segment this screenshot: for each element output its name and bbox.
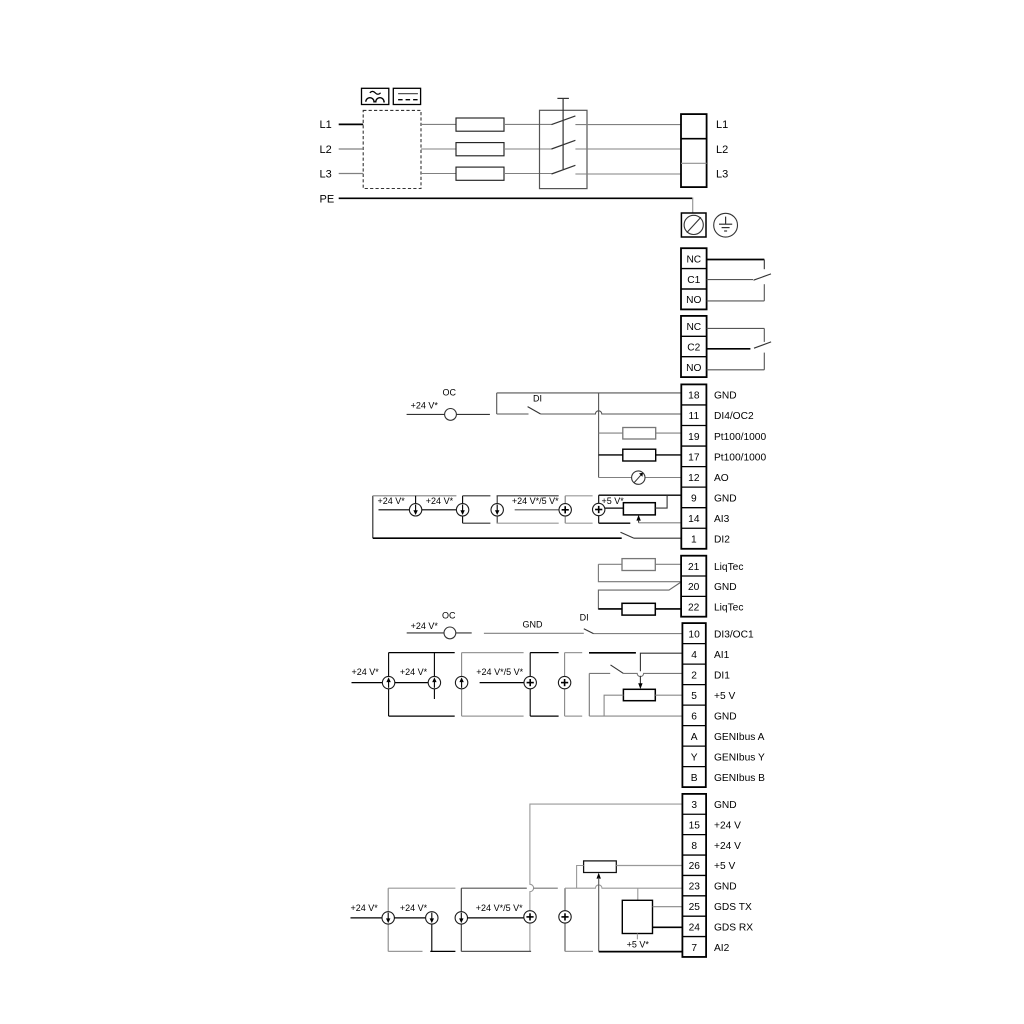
svg-text:DI: DI — [580, 612, 589, 622]
svg-text:6: 6 — [691, 711, 697, 722]
svg-text:GND: GND — [714, 391, 737, 402]
svg-text:26: 26 — [689, 861, 701, 872]
svg-text:17: 17 — [688, 452, 700, 463]
svg-text:+24 V*/5 V*: +24 V*/5 V* — [476, 903, 523, 913]
svg-text:NO: NO — [686, 363, 701, 374]
svg-text:Pt100/1000: Pt100/1000 — [714, 452, 766, 463]
svg-text:OC: OC — [443, 388, 457, 398]
svg-text:24: 24 — [689, 922, 701, 933]
svg-text:9: 9 — [691, 493, 697, 504]
svg-text:23: 23 — [689, 882, 701, 893]
svg-text:1: 1 — [691, 535, 697, 546]
svg-text:8: 8 — [691, 841, 697, 852]
svg-text:L1: L1 — [716, 119, 728, 131]
svg-text:7: 7 — [691, 943, 697, 954]
svg-text:Y: Y — [691, 752, 698, 763]
svg-text:GND: GND — [523, 619, 544, 629]
svg-text:DI: DI — [533, 393, 542, 403]
svg-text:10: 10 — [688, 629, 700, 640]
svg-text:20: 20 — [688, 582, 700, 593]
svg-text:L3: L3 — [320, 168, 332, 180]
svg-text:2: 2 — [691, 670, 697, 681]
svg-text:LiqTec: LiqTec — [714, 562, 743, 573]
svg-text:14: 14 — [688, 514, 700, 525]
svg-text:GENIbus B: GENIbus B — [714, 773, 765, 784]
svg-text:GND: GND — [714, 711, 737, 722]
svg-text:GDS TX: GDS TX — [714, 902, 752, 913]
svg-text:+24 V*/5 V*: +24 V*/5 V* — [512, 496, 559, 506]
svg-text:GND: GND — [714, 800, 737, 811]
svg-text:+5 V: +5 V — [714, 691, 735, 702]
svg-text:A: A — [691, 732, 698, 743]
svg-text:5: 5 — [691, 691, 697, 702]
svg-text:GENIbus Y: GENIbus Y — [714, 752, 765, 763]
svg-text:+5 V*: +5 V* — [602, 496, 625, 506]
svg-text:+24 V: +24 V — [714, 820, 741, 831]
svg-text:PE: PE — [320, 193, 335, 205]
svg-text:AI1: AI1 — [714, 650, 730, 661]
svg-text:GND: GND — [714, 493, 737, 504]
svg-text:C2: C2 — [687, 343, 700, 354]
svg-text:+24 V*: +24 V* — [352, 667, 380, 677]
svg-text:+24 V*: +24 V* — [400, 667, 428, 677]
svg-text:+24 V*: +24 V* — [411, 401, 439, 411]
svg-text:21: 21 — [688, 562, 700, 573]
svg-text:+24 V*: +24 V* — [378, 496, 406, 506]
svg-text:AI2: AI2 — [714, 943, 730, 954]
svg-text:3: 3 — [691, 800, 697, 811]
svg-text:DI3/OC1: DI3/OC1 — [714, 629, 754, 640]
svg-text:L3: L3 — [716, 169, 728, 181]
svg-text:NC: NC — [686, 322, 701, 333]
svg-text:NO: NO — [686, 295, 701, 306]
svg-text:+5 V: +5 V — [714, 861, 735, 872]
svg-text:L1: L1 — [320, 119, 332, 131]
svg-text:+24 V: +24 V — [714, 841, 741, 852]
svg-text:+24 V*: +24 V* — [426, 496, 454, 506]
svg-text:AI3: AI3 — [714, 514, 730, 525]
svg-text:GDS RX: GDS RX — [714, 922, 753, 933]
svg-text:B: B — [691, 773, 698, 784]
svg-text:+24 V*: +24 V* — [400, 903, 428, 913]
svg-text:GENIbus A: GENIbus A — [714, 732, 765, 743]
svg-text:L2: L2 — [320, 144, 332, 156]
svg-text:18: 18 — [688, 391, 700, 402]
svg-text:25: 25 — [689, 902, 701, 913]
svg-text:11: 11 — [689, 411, 700, 422]
svg-text:GND: GND — [714, 882, 737, 893]
svg-text:L2: L2 — [716, 144, 728, 156]
svg-text:+24 V*: +24 V* — [411, 621, 439, 631]
svg-text:19: 19 — [688, 432, 700, 443]
svg-text:12: 12 — [688, 473, 700, 484]
svg-text:+5 V*: +5 V* — [627, 940, 650, 950]
svg-text:C1: C1 — [687, 275, 700, 286]
svg-text:4: 4 — [691, 650, 697, 661]
svg-text:NC: NC — [686, 254, 701, 265]
svg-text:15: 15 — [689, 820, 701, 831]
svg-text:Pt100/1000: Pt100/1000 — [714, 432, 766, 443]
svg-text:+24 V*/5 V*: +24 V*/5 V* — [476, 667, 523, 677]
svg-text:+24 V*: +24 V* — [351, 903, 379, 913]
svg-text:DI4/OC2: DI4/OC2 — [714, 411, 754, 422]
svg-text:OC: OC — [442, 611, 456, 621]
svg-text:LiqTec: LiqTec — [714, 603, 743, 614]
svg-text:22: 22 — [688, 603, 700, 614]
svg-text:DI2: DI2 — [714, 535, 730, 546]
svg-text:GND: GND — [714, 582, 737, 593]
svg-text:AO: AO — [714, 473, 729, 484]
svg-text:DI1: DI1 — [714, 670, 730, 681]
